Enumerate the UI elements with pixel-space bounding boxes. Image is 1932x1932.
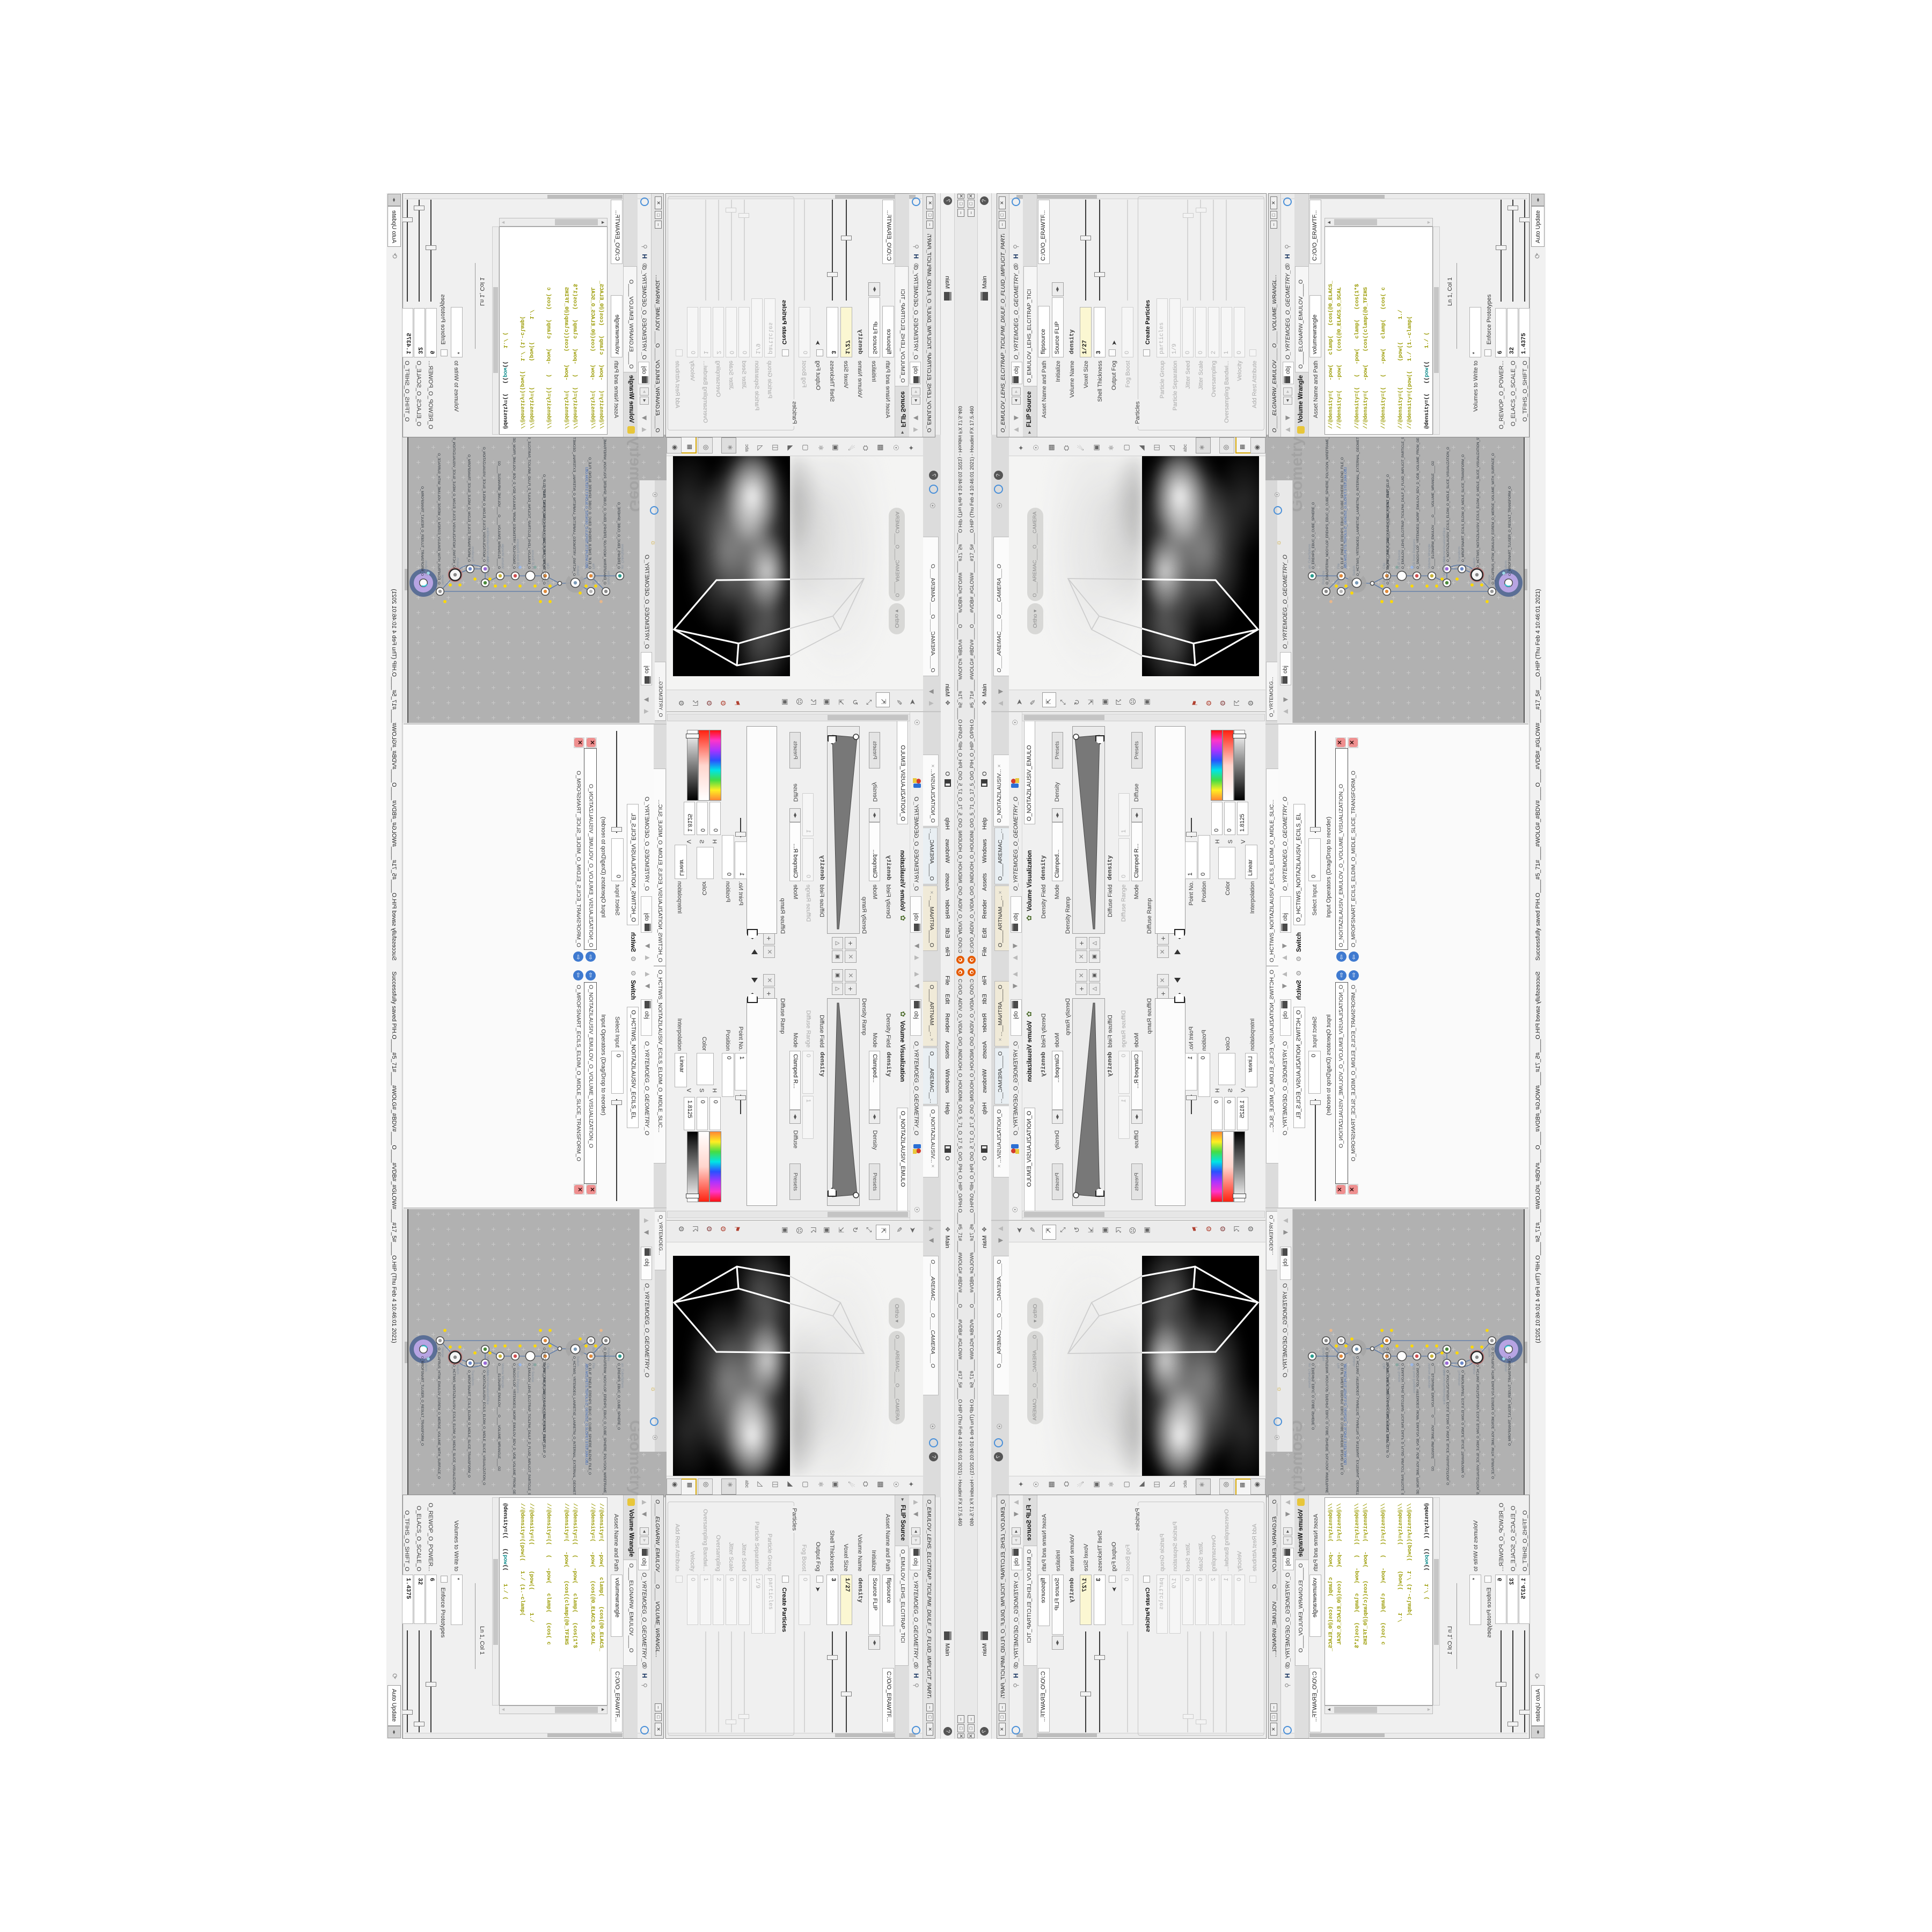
svg-text:Boolean: Boolean <box>1337 1348 1341 1360</box>
svg-text:O_HCTIWS_YRTEMOEG_LANRETXE_LAN: O_HCTIWS_YRTEMOEG_LANRETXE_LANRETNI_O_IN… <box>1356 435 1360 576</box>
svg-text:O_MROFSNART_ECILS_ELDIM_O_MIDL: O_MROFSNART_ECILS_ELDIM_O_MIDLE_SLICE_TR… <box>467 1370 471 1477</box>
svg-text:O_ECAFRUS_HTIW_EMULOV_EGREM_O_: O_ECAFRUS_HTIW_EMULOV_EGREM_O_MERGE_VOLU… <box>1491 1348 1495 1479</box>
svg-text:O_EMAGFERIW_NOGYLOP_EREHPS_EBU: O_EMAGFERIW_NOGYLOP_EREHPS_EBUC_O_CUBE_S… <box>1326 435 1329 584</box>
svg-text:Merge: Merge <box>1488 574 1491 584</box>
svg-text:Clip: Clip <box>1382 1348 1386 1353</box>
svg-text:O_MROFSNART_ECILS_ELDIM_O_MIDL: O_MROFSNART_ECILS_ELDIM_O_MIDLE_SLICE_TR… <box>1461 1370 1465 1477</box>
svg-text:O_PILC_TNORF_DNE_KCAB_O_BACK_E: O_PILC_TNORF_DNE_KCAB_O_BACK_END_FRONT_C… <box>542 1348 546 1447</box>
svg-text:Transform: Transform <box>424 1356 428 1372</box>
svg-text:FLIP Source: FLIP Source <box>1397 1363 1401 1382</box>
svg-text:O_HCTIWS_YRTEMOEG_LANRETXE_LAN: O_HCTIWS_YRTEMOEG_LANRETXE_LANRETNI_O_IN… <box>572 1356 576 1497</box>
svg-text:Switch: Switch <box>456 1364 459 1374</box>
svg-text:Merge: Merge <box>441 574 444 584</box>
svg-text:PolyWire: PolyWire <box>606 1348 610 1362</box>
svg-text:PolyWire: PolyWire <box>1322 1348 1326 1362</box>
svg-text:O_EMAGFERIW_NOGYLOP_EREHPS_EBU: O_EMAGFERIW_NOGYLOP_EREHPS_EBUC_O_CUBE_S… <box>603 1348 606 1497</box>
svg-text:O_NOITAZILAUSIV_ECILS_ELDIM_O_: O_NOITAZILAUSIV_ECILS_ELDIM_O_MIDLE_SLIC… <box>1446 1370 1450 1485</box>
svg-text:Boolean: Boolean <box>1337 572 1341 584</box>
svg-text:Volume Wrangle: Volume Wrangle <box>501 544 504 569</box>
svg-text:Boolean: Boolean <box>591 1348 595 1360</box>
svg-text:Transform: Transform <box>1504 1356 1508 1372</box>
svg-text:PolyWire: PolyWire <box>1322 570 1326 584</box>
svg-text:O_HCTIWS_NOITAZILAUSIV_ECILS_E: O_HCTIWS_NOITAZILAUSIV_ECILS_ELDIM_O_MID… <box>452 1364 456 1497</box>
svg-text:Volume Wrangle: Volume Wrangle <box>1428 1363 1431 1388</box>
svg-text:O_MROFSNART_TLUSER_O_RESULT_TR: O_MROFSNART_TLUSER_O_RESULT_TRANSFORM_O <box>420 1356 424 1446</box>
svg-text:an_CubeSphere: an_CubeSphere <box>1308 544 1312 569</box>
svg-text:JBO.M03,PETS.TEPOLS.O_GENUS3_O: JBO.M03,PETS.TEPOLS.O_GENUS3_O.SLOPET.ST… <box>1344 467 1348 569</box>
svg-text:VDB from Polygons: VDB from Polygons <box>1413 1363 1416 1393</box>
svg-text:Clip: Clip <box>1382 563 1386 569</box>
svg-text:O_ELIF_DNELB_EREHPS_EBUC_O_CUB: O_ELIF_DNELB_EREHPS_EBUC_O_CUBE_SPHERE_B… <box>588 1363 591 1475</box>
svg-text:O_HCTIWS_YRTEMOEG_LANRETXE_LAN: O_HCTIWS_YRTEMOEG_LANRETXE_LANRETNI_O_IN… <box>572 435 576 576</box>
svg-text:Merge: Merge <box>1488 1348 1491 1358</box>
svg-text:an_CubeSphere: an_CubeSphere <box>1308 1363 1312 1388</box>
svg-text:Visualization: Visualization <box>1443 557 1446 576</box>
svg-text:Transform: Transform <box>424 560 428 576</box>
svg-text:O_MROFSNART_TLUSER_O_RESULT_TR: O_MROFSNART_TLUSER_O_RESULT_TRANSFORM_O <box>420 486 424 576</box>
svg-text:Visualization: Visualization <box>1443 1356 1446 1375</box>
svg-text:Visualization: Visualization <box>486 1356 489 1375</box>
svg-text:Switch: Switch <box>1473 1364 1476 1374</box>
svg-text:O_EMAGFERIW_NOGYLOP_EREHPS_EBU: O_EMAGFERIW_NOGYLOP_EREHPS_EBUC_O_CUBE_S… <box>603 435 606 584</box>
svg-text:O_EMULOV_LEHS_ELCITRAP_TICILPM: O_EMULOV_LEHS_ELCITRAP_TICILPMI_DIULF_D_… <box>1401 1363 1405 1497</box>
svg-text:VDB from Polygons: VDB from Polygons <box>516 1363 519 1393</box>
svg-text:FLIP Source: FLIP Source <box>531 550 535 569</box>
svg-text:Boolean: Boolean <box>591 572 595 584</box>
svg-text:O_HCTIWS_NOITAZILAUSIV_ECILS_E: O_HCTIWS_NOITAZILAUSIV_ECILS_ELDIM_O_MID… <box>452 435 456 568</box>
svg-text:JBO.M03,PETS.TEPOLS.O_GENUS3_O: JBO.M03,PETS.TEPOLS.O_GENUS3_O.SLOPET.ST… <box>584 1363 588 1465</box>
svg-text:O_ECAFRUS_HTIW_EMULOV_EGREM_O_: O_ECAFRUS_HTIW_EMULOV_EGREM_O_MERGE_VOLU… <box>437 1348 441 1479</box>
svg-text:O_ECAFRUS_HTIW_EMULOV_EGREM_O_: O_ECAFRUS_HTIW_EMULOV_EGREM_O_MERGE_VOLU… <box>1491 453 1495 584</box>
svg-text:O_PILC_TNORF_DNE_KCAB_O_BACK_E: O_PILC_TNORF_DNE_KCAB_O_BACK_END_FRONT_C… <box>1386 1348 1390 1447</box>
svg-text:Clip: Clip <box>546 1363 550 1369</box>
svg-text:Transform: Transform <box>1458 1370 1461 1386</box>
svg-text:O_EMAGFERIW_NOGYLOP_EREHPS_EBU: O_EMAGFERIW_NOGYLOP_EREHPS_EBUC_O_CUBE_S… <box>1326 1348 1329 1497</box>
svg-text:JBO.M03,PETS.TEPOLS.O_GENUS3_O: JBO.M03,PETS.TEPOLS.O_GENUS3_O.SLOPET.ST… <box>584 467 588 569</box>
svg-text:Switch: Switch <box>576 1356 580 1366</box>
svg-text:Switch: Switch <box>576 566 580 576</box>
svg-text:JBO.M03,PETS.TEPOLS.O_GENUS3_O: JBO.M03,PETS.TEPOLS.O_GENUS3_O.SLOPET.ST… <box>1344 1363 1348 1465</box>
svg-text:O_EMULOV_LEHS_ELCITRAP_TICILPM: O_EMULOV_LEHS_ELCITRAP_TICILPMI_DIULF_D_… <box>527 1363 531 1497</box>
svg-text:O_ECAFRUS_HTIW_EMULOV_EGREM_O_: O_ECAFRUS_HTIW_EMULOV_EGREM_O_MERGE_VOLU… <box>437 453 441 584</box>
svg-text:O_PILC_TNORF_DNE_KCAB_O_BACK_E: O_PILC_TNORF_DNE_KCAB_O_BACK_END_FRONT_C… <box>542 485 546 584</box>
svg-text:Switch: Switch <box>456 558 459 568</box>
svg-text:O_EREHPS_EBUC_O_CUBE_SPHERE_O: O_EREHPS_EBUC_O_CUBE_SPHERE_O <box>1312 502 1315 569</box>
svg-text:File: File <box>591 1363 595 1369</box>
svg-text:O_EREHPS_EBUC_O_CUBE_SPHERE_O: O_EREHPS_EBUC_O_CUBE_SPHERE_O <box>617 502 620 569</box>
svg-text:O____ELGNARW_EMULOV____O____VO: O____ELGNARW_EMULOV____O____VOLUME_WRANG… <box>1431 1363 1435 1471</box>
svg-text:Switch: Switch <box>1473 558 1476 568</box>
svg-text:Volume Wrangle: Volume Wrangle <box>1428 544 1431 569</box>
svg-text:O_HCTIWS_NOITAZILAUSIV_ECILS_E: O_HCTIWS_NOITAZILAUSIV_ECILS_ELDIM_O_MID… <box>1476 435 1480 568</box>
svg-text:PolyWire: PolyWire <box>606 570 610 584</box>
svg-text:Visualization: Visualization <box>486 557 489 576</box>
svg-text:FLIP Source: FLIP Source <box>1397 550 1401 569</box>
svg-text:Transform: Transform <box>471 546 474 562</box>
svg-text:Clip: Clip <box>1382 579 1386 584</box>
svg-text:O_SNOGYLOP_YRTEMOEG_MORF_EMULO: O_SNOGYLOP_YRTEMOEG_MORF_EMULOV_BDV_D_VD… <box>512 1363 516 1497</box>
svg-text:FLIP Source: FLIP Source <box>531 1363 535 1382</box>
svg-text:Clip: Clip <box>546 579 550 584</box>
svg-text:O_SNOGYLOP_YRTEMOEG_MORF_EMULO: O_SNOGYLOP_YRTEMOEG_MORF_EMULOV_BDV_D_VD… <box>1416 1363 1420 1497</box>
svg-text:File: File <box>1337 563 1341 569</box>
svg-text:O_MROFSNART_TLUSER_O_RESULT_TR: O_MROFSNART_TLUSER_O_RESULT_TRANSFORM_O <box>1508 1356 1512 1446</box>
svg-text:Volume Wrangle: Volume Wrangle <box>501 1363 504 1388</box>
svg-text:O_EMULOV_LEHS_ELCITRAP_TICILPM: O_EMULOV_LEHS_ELCITRAP_TICILPMI_DIULF_D_… <box>527 435 531 569</box>
svg-text:Transform: Transform <box>471 1370 474 1386</box>
svg-text:O_PILC_TNORF_DNE_KCAB_O_BACK_E: O_PILC_TNORF_DNE_KCAB_O_BACK_END_FRONT_C… <box>1386 485 1390 584</box>
svg-text:Switch: Switch <box>1352 566 1356 576</box>
svg-text:O_EREHPS_EBUC_O_CUBE_SPHERE_O: O_EREHPS_EBUC_O_CUBE_SPHERE_O <box>617 1363 620 1430</box>
svg-text:O____ELGNARW_EMULOV____O____VO: O____ELGNARW_EMULOV____O____VOLUME_WRANG… <box>497 1363 501 1471</box>
svg-text:File: File <box>591 563 595 569</box>
svg-text:O_NOITAZILAUSIV_ECILS_ELDIM_O_: O_NOITAZILAUSIV_ECILS_ELDIM_O_MIDLE_SLIC… <box>1446 447 1450 562</box>
svg-text:O_MROFSNART_TLUSER_O_RESULT_TR: O_MROFSNART_TLUSER_O_RESULT_TRANSFORM_O <box>1508 486 1512 576</box>
svg-text:an_CubeSphere: an_CubeSphere <box>620 544 624 569</box>
svg-text:File: File <box>1337 1363 1341 1369</box>
svg-text:Clip: Clip <box>546 563 550 569</box>
svg-text:O____ELGNARW_EMULOV____O____VO: O____ELGNARW_EMULOV____O____VOLUME_WRANG… <box>1431 461 1435 569</box>
svg-text:Transform: Transform <box>1458 546 1461 562</box>
svg-text:Transform: Transform <box>1504 560 1508 576</box>
svg-text:Merge: Merge <box>441 1348 444 1358</box>
svg-text:O_NOITAZILAUSIV_ECILS_ELDIM_O_: O_NOITAZILAUSIV_ECILS_ELDIM_O_MIDLE_SLIC… <box>482 1370 486 1485</box>
svg-text:O_NOITAZILAUSIV_ECILS_ELDIM_O_: O_NOITAZILAUSIV_ECILS_ELDIM_O_MIDLE_SLIC… <box>482 447 486 562</box>
svg-text:O_EMULOV_LEHS_ELCITRAP_TICILPM: O_EMULOV_LEHS_ELCITRAP_TICILPMI_DIULF_D_… <box>1401 435 1405 569</box>
svg-text:O_HCTIWS_YRTEMOEG_LANRETXE_LAN: O_HCTIWS_YRTEMOEG_LANRETXE_LANRETNI_O_IN… <box>1356 1356 1360 1497</box>
svg-text:Switch: Switch <box>1352 1356 1356 1366</box>
svg-text:VDB from Polygons: VDB from Polygons <box>516 539 519 569</box>
svg-text:O_ELIF_DNELB_EREHPS_EBUC_O_CUB: O_ELIF_DNELB_EREHPS_EBUC_O_CUBE_SPHERE_B… <box>588 457 591 569</box>
svg-text:O_SNOGYLOP_YRTEMOEG_MORF_EMULO: O_SNOGYLOP_YRTEMOEG_MORF_EMULOV_BDV_D_VD… <box>1416 435 1420 569</box>
svg-text:O____ELGNARW_EMULOV____O____VO: O____ELGNARW_EMULOV____O____VOLUME_WRANG… <box>497 461 501 569</box>
svg-text:Clip: Clip <box>546 1348 550 1353</box>
svg-text:O_MROFSNART_ECILS_ELDIM_O_MIDL: O_MROFSNART_ECILS_ELDIM_O_MIDLE_SLICE_TR… <box>1461 455 1465 562</box>
svg-text:O_MROFSNART_ECILS_ELDIM_O_MIDL: O_MROFSNART_ECILS_ELDIM_O_MIDLE_SLICE_TR… <box>467 455 471 562</box>
svg-text:an_CubeSphere: an_CubeSphere <box>620 1363 624 1388</box>
svg-text:O_EREHPS_EBUC_O_CUBE_SPHERE_O: O_EREHPS_EBUC_O_CUBE_SPHERE_O <box>1312 1363 1315 1430</box>
svg-text:O_HCTIWS_NOITAZILAUSIV_ECILS_E: O_HCTIWS_NOITAZILAUSIV_ECILS_ELDIM_O_MID… <box>1476 1364 1480 1497</box>
svg-text:O_SNOGYLOP_YRTEMOEG_MORF_EMULO: O_SNOGYLOP_YRTEMOEG_MORF_EMULOV_BDV_D_VD… <box>512 435 516 569</box>
svg-text:Clip: Clip <box>1382 1363 1386 1369</box>
svg-text:VDB from Polygons: VDB from Polygons <box>1413 539 1416 569</box>
